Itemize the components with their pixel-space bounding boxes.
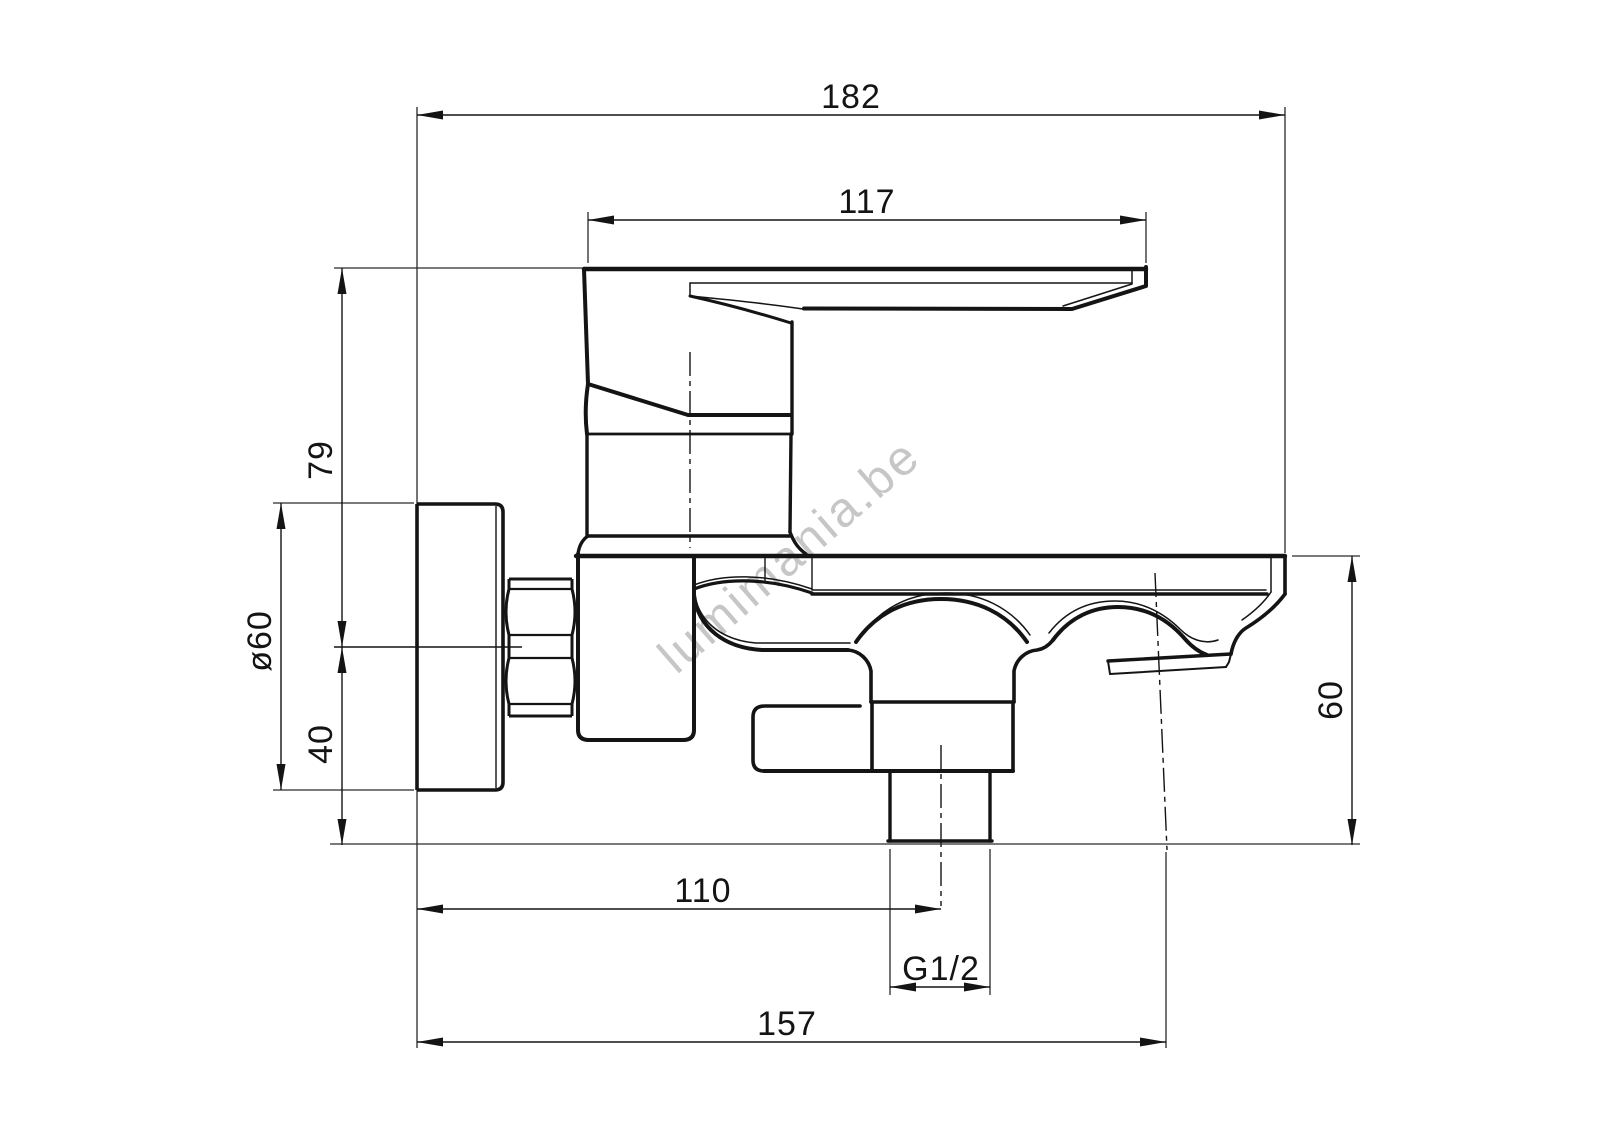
dim-label-110: 110 — [674, 872, 731, 910]
dim-label-g12: G1/2 — [902, 950, 980, 988]
dim-label-182: 182 — [821, 78, 881, 116]
dim-label-40: 40 — [302, 724, 340, 764]
faucet-dimension-drawing: lumimania.be — [0, 0, 1600, 1131]
aerator-bottom-edge — [1110, 667, 1226, 674]
diverter-and-outlet-outline — [753, 702, 1014, 841]
diverter-knob — [753, 706, 860, 771]
spout-outlet-outline — [1108, 556, 1285, 674]
dimension-arrowheads — [277, 111, 1357, 1047]
arch-1 — [856, 599, 1027, 642]
dim-label-117: 117 — [838, 183, 895, 221]
dim-label-60: 60 — [1312, 680, 1350, 720]
technical-drawing-canvas: lumimania.be — [0, 0, 1600, 1131]
spout-nose — [1231, 594, 1285, 654]
cartridge-neck-outline — [578, 322, 806, 554]
aerator-top-edge — [1108, 654, 1231, 661]
lever-handle-outline — [584, 267, 1146, 434]
arch-2 — [1053, 607, 1207, 655]
dim-label-d60: ø60 — [241, 610, 279, 672]
dim-label-79: 79 — [302, 440, 340, 480]
dimension-lines — [281, 115, 1352, 1042]
threaded-pipe-sides — [890, 771, 990, 841]
underdeck-arches-outline — [848, 593, 1218, 702]
dim-label-157: 157 — [757, 1005, 817, 1043]
